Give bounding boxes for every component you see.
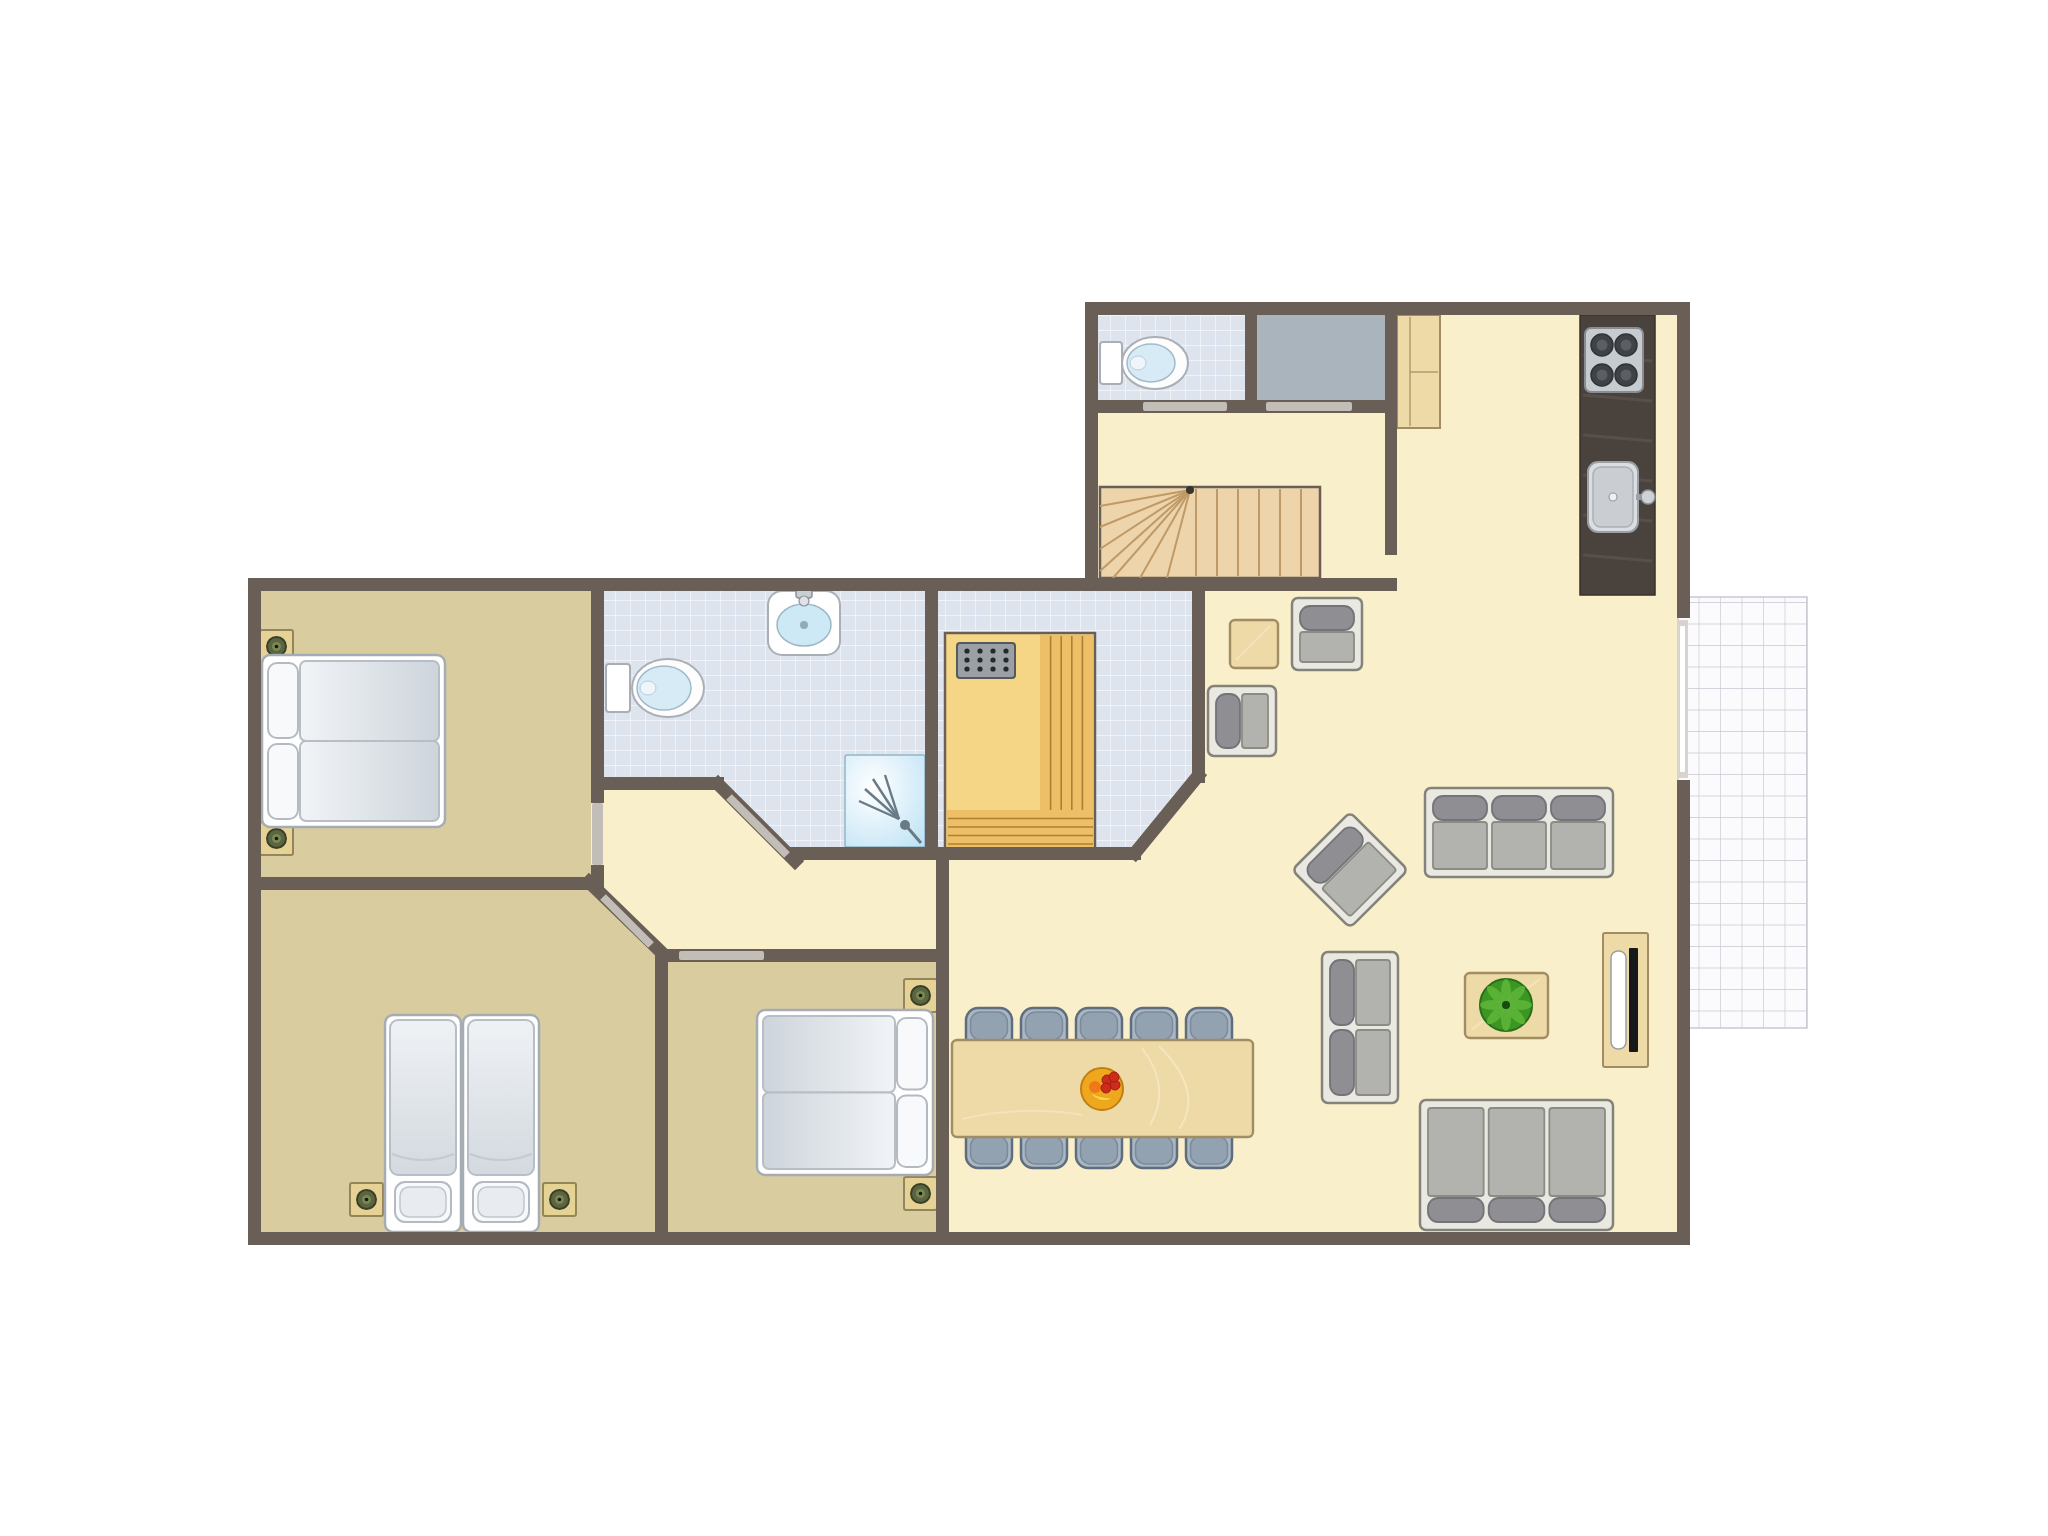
sofa-3-seat-top [1425, 788, 1613, 877]
sofa-3-seat-bottom [1420, 1100, 1613, 1230]
stove [1585, 328, 1643, 392]
floor-plan [0, 0, 2048, 1536]
sofa-2-seat [1322, 952, 1398, 1103]
single-bed-left [385, 1015, 461, 1232]
floor-plan-page [0, 0, 2048, 1536]
kitchen-cabinet [1397, 315, 1440, 428]
nightstand [350, 1183, 383, 1216]
side-table [1230, 620, 1278, 668]
armchair [1208, 686, 1276, 756]
sauna-cabin [945, 633, 1095, 850]
nightstand [904, 1177, 937, 1210]
armchair [1292, 598, 1362, 670]
potted-plant [1480, 979, 1532, 1031]
nightstand [904, 979, 937, 1012]
double-bed-bedroom-3 [757, 1010, 933, 1175]
fruit-bowl [1081, 1068, 1123, 1110]
nightstand [543, 1183, 576, 1216]
floor-storage [1257, 315, 1385, 400]
toilet-bathroom [597, 659, 704, 717]
single-bed-right [463, 1015, 539, 1232]
shower [845, 755, 925, 847]
terrace [1678, 597, 1807, 1028]
stairs [1100, 486, 1320, 578]
washbasin [768, 588, 840, 655]
tv-sideboard [1603, 933, 1648, 1067]
toilet-wc [1091, 337, 1188, 389]
double-bed-bedroom-1 [262, 655, 445, 827]
